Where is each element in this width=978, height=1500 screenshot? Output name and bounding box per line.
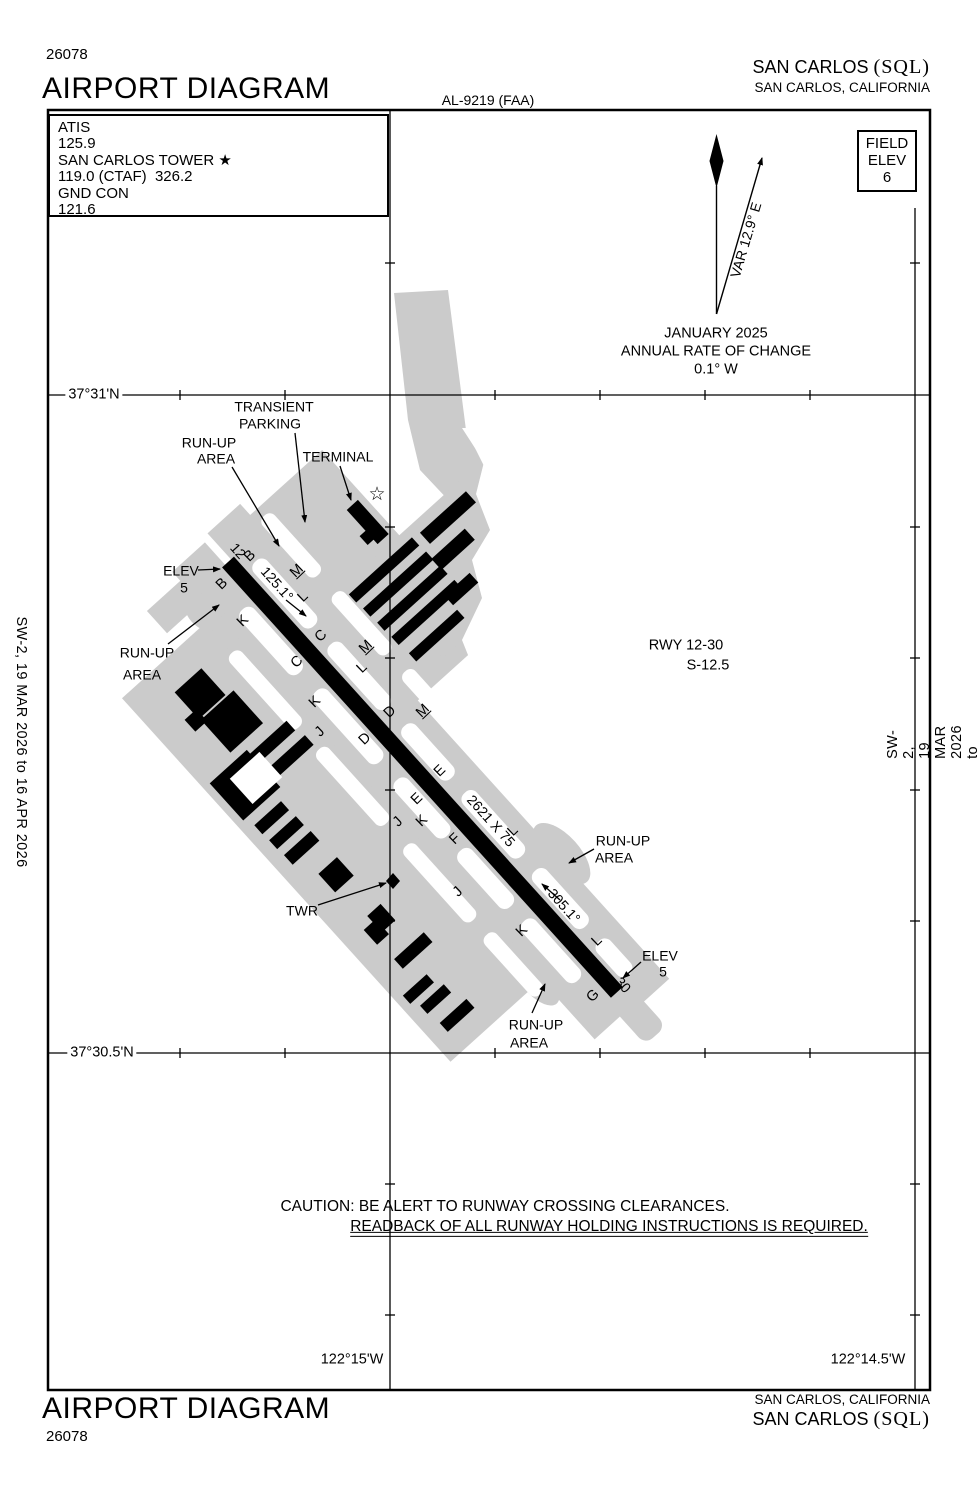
runup-area-w-label-1: RUN-UP	[120, 646, 174, 661]
airport-beacon-star-icon: ☆	[368, 485, 385, 505]
runup-area-nw-label-1: RUN-UP	[182, 436, 236, 451]
taxiway-label-k-21: K	[513, 922, 531, 940]
runup-area-e-label-1: RUN-UP	[596, 834, 650, 849]
taxiway-label-f-18: F	[446, 830, 463, 848]
runup-area-s-label-1: RUN-UP	[509, 1018, 563, 1033]
taxiway-label-k-9: K	[306, 693, 324, 711]
runway-heading-30: 305.1°	[545, 886, 583, 926]
taxiway-label-b-1: B	[213, 575, 231, 593]
taxiway-label-l-22: L	[589, 932, 606, 949]
airport-diagram-page: 26078 AIRPORT DIAGRAM AL-9219 (FAA) SAN …	[0, 0, 978, 1500]
taxiway-label-d-13: D	[356, 730, 375, 749]
taxiway-label-l-3: L	[295, 588, 312, 605]
taxiway-label-j-20: J	[450, 884, 466, 901]
taxiway-label-d-11: D	[381, 703, 400, 722]
rwy-info-line2: S-12.5	[687, 658, 730, 673]
elev-12-label: ELEV	[163, 564, 199, 579]
caution-line1: CAUTION: BE ALERT TO RUNWAY CROSSING CLE…	[280, 1199, 729, 1215]
variation-rate-value: 0.1° W	[694, 362, 738, 377]
elev-30-label: ELEV	[642, 949, 678, 964]
lat-top-label: 37°31'N	[65, 387, 122, 402]
elev-12-value: 5	[180, 581, 188, 596]
taxiway-label-m-7: M	[356, 637, 376, 657]
diagram-labels-layer: TRANSIENTPARKINGRUN-UPAREATERMINALELEV5R…	[0, 0, 978, 1500]
variation-date: JANUARY 2025	[664, 326, 767, 341]
runup-area-nw-label-2: AREA	[197, 452, 235, 467]
caution-line2: READBACK OF ALL RUNWAY HOLDING INSTRUCTI…	[350, 1219, 868, 1237]
taxiway-label-m-12: M	[413, 701, 433, 721]
twr-label: TWR	[286, 904, 318, 919]
taxiway-label-j-10: J	[312, 724, 328, 741]
runway-number-30: 30	[612, 974, 633, 995]
runup-area-s-label-2: AREA	[510, 1036, 548, 1051]
transient-parking-label-2: PARKING	[239, 417, 301, 432]
var-label: VAR 12.9° E	[728, 201, 764, 280]
taxiway-label-c-5: C	[312, 627, 331, 646]
runup-area-e-label-2: AREA	[595, 851, 633, 866]
taxiway-label-k-4: K	[234, 612, 252, 630]
variation-rate-label: ANNUAL RATE OF CHANGE	[621, 344, 811, 359]
taxiway-label-e-15: E	[408, 790, 426, 808]
taxiway-label-e-14: E	[431, 762, 449, 780]
terminal-label: TERMINAL	[303, 450, 374, 465]
runup-area-w-label-2: AREA	[123, 668, 161, 683]
lon-left-label: 122°15'W	[321, 1352, 384, 1367]
taxiway-label-j-16: J	[390, 814, 406, 831]
taxiway-label-m-2: M	[287, 561, 307, 581]
lon-right-label: 122°14.5'W	[831, 1352, 906, 1367]
transient-parking-label-1: TRANSIENT	[234, 400, 313, 415]
elev-30-value: 5	[659, 965, 667, 980]
taxiway-label-b-0: B	[241, 547, 259, 565]
taxiway-label-l-8: L	[354, 659, 371, 676]
lat-bottom-label: 37°30.5'N	[67, 1045, 136, 1060]
taxiway-label-k-17: K	[413, 812, 431, 830]
rwy-info-line1: RWY 12-30	[649, 638, 723, 653]
runway-dimensions: 2621 X 75	[464, 792, 518, 849]
taxiway-label-g-23: G	[583, 986, 602, 1005]
taxiway-label-c-6: C	[288, 653, 307, 672]
